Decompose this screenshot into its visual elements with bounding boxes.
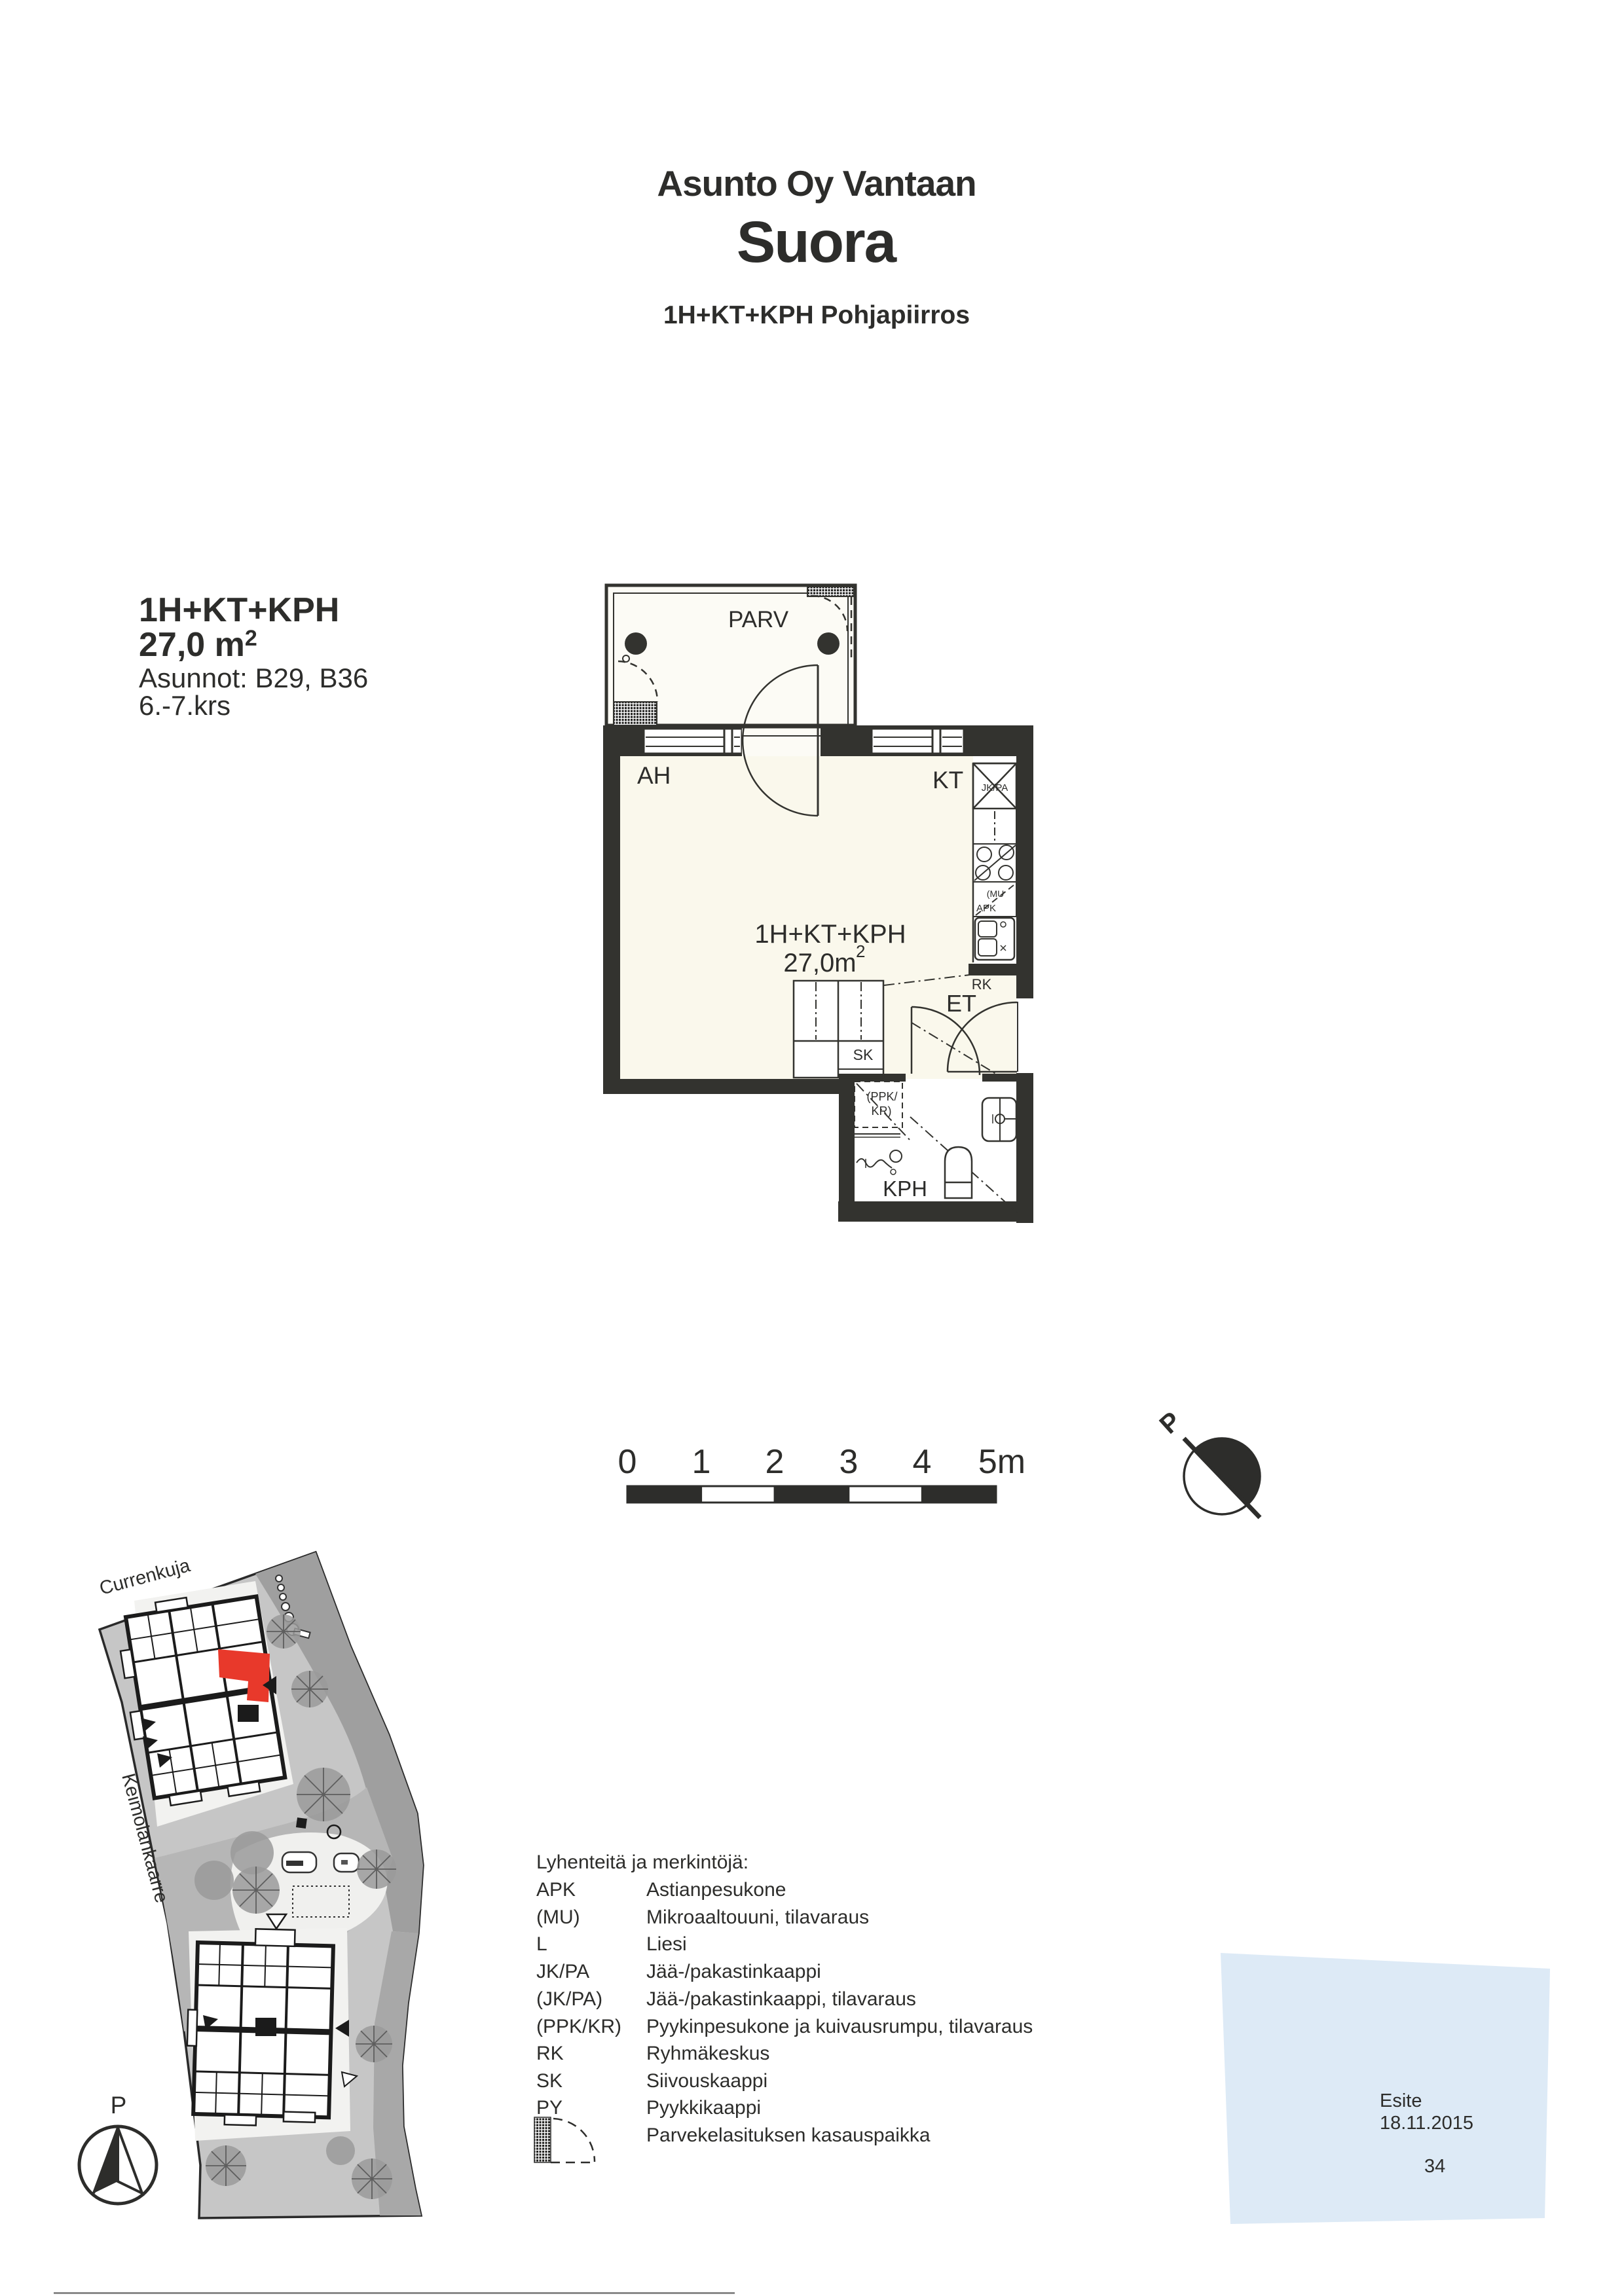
- svg-text:1: 1: [692, 1443, 711, 1481]
- svg-text:KPH: KPH: [883, 1176, 927, 1201]
- svg-text:(PPK/KR): (PPK/KR): [536, 2016, 621, 2037]
- svg-text:APK: APK: [536, 1879, 576, 1901]
- svg-text:(JK/PA): (JK/PA): [536, 1988, 602, 2010]
- svg-text:AH: AH: [637, 762, 671, 789]
- svg-text:2: 2: [766, 1443, 784, 1481]
- svg-text:Siivouskaappi: Siivouskaappi: [646, 2070, 767, 2092]
- svg-text:(PPK/: (PPK/: [866, 1090, 897, 1103]
- svg-text:5m: 5m: [978, 1443, 1025, 1481]
- svg-text:Asunnot: B29, B36: Asunnot: B29, B36: [139, 663, 368, 693]
- svg-text:0: 0: [618, 1443, 637, 1481]
- svg-text:Lyhenteitä ja merkintöjä:: Lyhenteitä ja merkintöjä:: [536, 1851, 748, 1873]
- svg-text:27,0m: 27,0m: [783, 949, 856, 977]
- svg-text:JK/PA: JK/PA: [536, 1961, 589, 1982]
- svg-text:Suora: Suora: [737, 209, 898, 274]
- svg-text:KR): KR): [872, 1104, 892, 1118]
- svg-text:L: L: [536, 1933, 547, 1955]
- svg-text:PARV: PARV: [728, 607, 789, 632]
- svg-text:27,0 m2: 27,0 m2: [139, 626, 257, 664]
- svg-text:RK: RK: [536, 2043, 564, 2064]
- svg-text:(MU): (MU): [536, 1906, 580, 1928]
- svg-text:SK: SK: [536, 2070, 563, 2092]
- svg-text:Asunto Oy Vantaan: Asunto Oy Vantaan: [657, 163, 976, 204]
- svg-text:Mikroaaltouuni, tilavaraus: Mikroaaltouuni, tilavaraus: [646, 1906, 869, 1928]
- svg-text:1H+KT+KPH Pohjapiirros: 1H+KT+KPH Pohjapiirros: [663, 301, 970, 329]
- svg-text:PY: PY: [536, 2097, 563, 2119]
- svg-text:18.11.2015: 18.11.2015: [1380, 2113, 1473, 2134]
- svg-text:P: P: [111, 2092, 127, 2119]
- svg-text:APK: APK: [976, 903, 996, 914]
- svg-text:1H+KT+KPH: 1H+KT+KPH: [754, 920, 906, 949]
- svg-text:(MU: (MU: [987, 888, 1004, 899]
- svg-text:SK: SK: [853, 1046, 874, 1063]
- svg-text:Astianpesukone: Astianpesukone: [646, 1879, 786, 1901]
- svg-text:3: 3: [840, 1443, 858, 1481]
- svg-text:6.-7.krs: 6.-7.krs: [139, 690, 231, 721]
- svg-text:ET: ET: [946, 990, 976, 1017]
- svg-text:KT: KT: [932, 767, 963, 793]
- svg-text:2: 2: [856, 941, 865, 961]
- svg-text:Ryhmäkeskus: Ryhmäkeskus: [646, 2043, 769, 2064]
- svg-text:Jää-/pakastinkaappi: Jää-/pakastinkaappi: [646, 1961, 821, 1982]
- svg-text:Pyykkikaappi: Pyykkikaappi: [646, 2097, 761, 2119]
- svg-text:4: 4: [913, 1443, 932, 1481]
- svg-text:Esite: Esite: [1380, 2090, 1422, 2111]
- svg-text:34: 34: [1424, 2156, 1445, 2177]
- svg-text:Liesi: Liesi: [646, 1933, 687, 1955]
- svg-text:Pyykinpesukone ja kuivausrumpu: Pyykinpesukone ja kuivausrumpu, tilavara…: [646, 2016, 1033, 2037]
- svg-text:1H+KT+KPH: 1H+KT+KPH: [139, 591, 339, 629]
- svg-text:Parvekelasituksen kasauspaikka: Parvekelasituksen kasauspaikka: [646, 2124, 931, 2146]
- svg-text:JK/PA: JK/PA: [982, 782, 1008, 793]
- svg-text:Jää-/pakastinkaappi, tilavarau: Jää-/pakastinkaappi, tilavaraus: [646, 1988, 916, 2010]
